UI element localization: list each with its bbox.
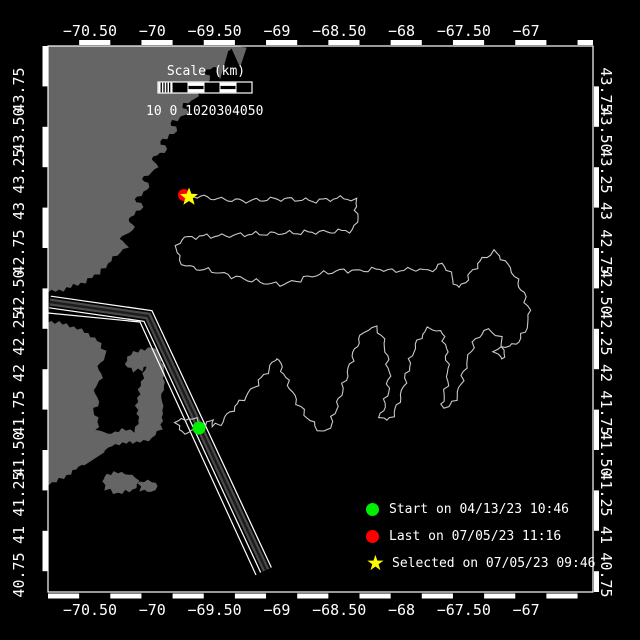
legend-start-label: Start on 04/13/23 10:46 [389,502,569,517]
lat-tick-label: 40.75 [10,552,28,597]
scale-bar-hatch-line [161,83,162,93]
lon-tick-label: −67 [513,601,540,619]
lon-tick-label: −67.50 [437,601,491,619]
scale-bar-divider [172,83,173,93]
lon-tick-label: −70.50 [63,22,117,40]
lat-tick-label: 42.50 [597,270,615,315]
frame-band-segment [515,40,546,45]
frame-band-segment [266,40,297,45]
frame-band-segment [43,288,48,328]
frame-band-segment [546,594,577,599]
glider-track-map: −70.50−70−69.50−69−68.50−68−67.50−67 −70… [0,0,640,640]
scale-bar-cell-stripe [220,86,236,89]
lat-tick-label: 42.25 [10,310,28,355]
frame-band-segment [48,594,79,599]
frame-band-segment [43,450,48,490]
lon-tick-label: −70.50 [63,601,117,619]
legend-item-last: Last on 07/05/23 11:16 [366,527,561,545]
lat-tick-label: 42.50 [10,270,28,315]
lat-tick-label: 41.25 [10,472,28,517]
scale-bar-hatch-line [166,83,167,93]
last-dot-icon [366,530,379,543]
lon-tick-label: −69 [263,22,290,40]
lat-tick-label: 40.75 [597,552,615,597]
lat-tick-label: 42.25 [597,310,615,355]
land-cape-cod-mainland [38,320,165,487]
lat-tick-label: 41.50 [10,431,28,476]
frame-band-segment [235,594,266,599]
lat-tick-label: 42 [597,364,615,382]
lon-tick-label: −67.50 [437,22,491,40]
glider-track [175,195,531,434]
lat-tick-label: 42 [10,364,28,382]
track-layer [175,195,531,434]
scale-bar-divider [236,83,237,93]
frame-band-segment [43,127,48,167]
frame-band-segment [141,40,172,45]
lon-tick-label: −70 [139,22,166,40]
lat-tick-label: 43 [597,202,615,220]
frame-band-segment [204,40,235,45]
lon-tick-label: −69 [263,601,290,619]
legend-selected-label: Selected on 07/05/23 09:46 [392,556,596,571]
lat-tick-label: 43.50 [10,108,28,153]
start-position-marker [193,422,206,435]
lat-tick-label: 43.25 [10,148,28,193]
scale-bar-divider [220,83,221,93]
frame-band-segment [422,594,453,599]
legend-last-label: Last on 07/05/23 11:16 [389,529,561,544]
lon-tick-label: −68 [388,601,415,619]
lon-tick-label: −69.50 [188,601,242,619]
lon-tick-label: −68 [388,22,415,40]
lat-tick-label: 41 [10,526,28,544]
lat-tick-label: 43 [10,202,28,220]
scale-bar-cell-stripe [188,86,204,89]
scale-bar-title: Scale (km) [158,64,254,79]
start-dot-icon [366,503,379,516]
lat-tick-label: 42.75 [10,229,28,274]
frame-band-segment [391,40,422,45]
frame-band-segment [43,531,48,571]
lat-tick-label: 41.75 [597,391,615,436]
frame-band-segment [173,594,204,599]
frame-band-segment [297,594,328,599]
frame-band-segment [328,40,359,45]
frame-band-segment [360,594,391,599]
frame-band-segment [43,208,48,248]
lon-tick-label: −68.50 [312,22,366,40]
lat-tick-label: 41.50 [597,431,615,476]
lon-tick-label: −69.50 [188,22,242,40]
scale-bar-divider [188,83,189,93]
lon-tick-label: −68.50 [312,601,366,619]
scale-bar-hatch-line [169,83,170,93]
land-coast-finger-3 [231,46,246,66]
lat-tick-label: 43.50 [597,108,615,153]
selected-star-icon: ★ [366,557,382,570]
lon-tick-label: −67 [513,22,540,40]
lat-tick-label: 43.75 [597,67,615,112]
scale-bar [158,82,252,93]
frame-band-segment [484,594,515,599]
frame-band-segment [43,46,48,86]
lat-tick-label: 43.75 [10,67,28,112]
lat-tick-label: 43.25 [597,148,615,193]
lon-tick-label: −70 [139,601,166,619]
frame-band-segment [79,40,110,45]
lat-tick-label: 41.25 [597,472,615,517]
land-nantucket [138,480,157,491]
land-marthas-vineyard [103,472,139,494]
legend-item-selected: ★ Selected on 07/05/23 09:46 [366,554,596,572]
lat-tick-label: 42.75 [597,229,615,274]
lat-tick-label: 41.75 [10,391,28,436]
scale-bar-divider [204,83,205,93]
scale-bar-tick-labels: 10 0 1020304050 [146,104,263,119]
lat-tick-label: 41 [597,526,615,544]
frame-band-segment [110,594,141,599]
frame-band-segment [578,40,593,45]
frame-band-segment [43,369,48,409]
frame-band-segment [453,40,484,45]
legend-item-start: Start on 04/13/23 10:46 [366,500,569,518]
scale-bar-hatch-line [163,83,164,93]
